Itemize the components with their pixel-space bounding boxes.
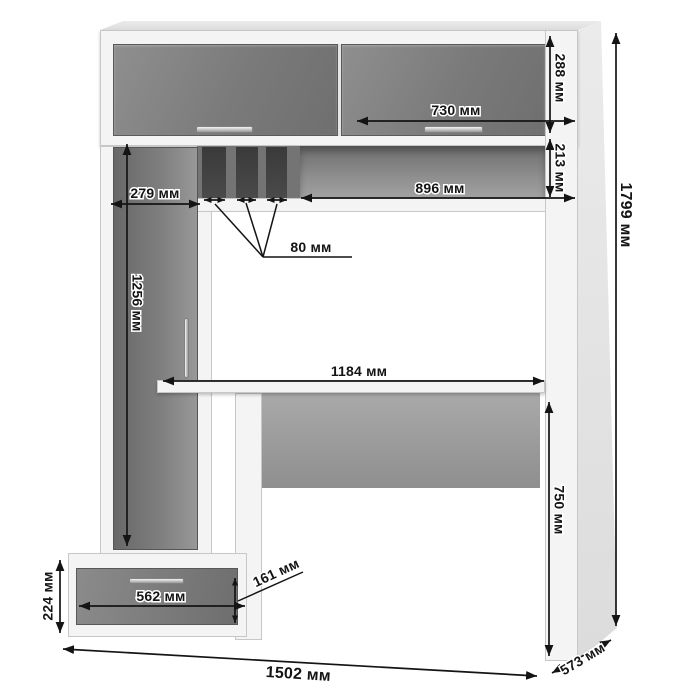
dim-label-288: 288 мм [552, 53, 568, 102]
dim-label-1502: 1502 мм [265, 664, 331, 685]
dim-label-573: 573 мм [557, 639, 607, 678]
dim-label-562: 562 мм [136, 588, 185, 604]
desk-dimension-diagram: 288 мм 730 мм 213 мм 896 мм 279 мм 80 мм… [0, 0, 700, 700]
dim-label-730: 730 мм [431, 102, 480, 118]
dim-label-224: 224 мм [40, 571, 56, 620]
leader-80-2 [246, 203, 263, 257]
dim-label-750: 750 мм [551, 485, 567, 534]
dim-label-213: 213 мм [552, 143, 568, 192]
dim-label-1256: 1256 мм [129, 274, 145, 331]
leader-80-3 [263, 204, 277, 257]
dim-label-896: 896 мм [415, 180, 464, 196]
dim-label-1184: 1184 мм [331, 363, 387, 379]
leader-80-1 [215, 204, 263, 257]
dim-label-1799: 1799 мм [617, 182, 634, 247]
dimension-annotations: 288 мм 730 мм 213 мм 896 мм 279 мм 80 мм… [0, 0, 700, 700]
dim-label-279: 279 мм [130, 185, 179, 201]
dim-label-80: 80 мм [290, 239, 331, 255]
